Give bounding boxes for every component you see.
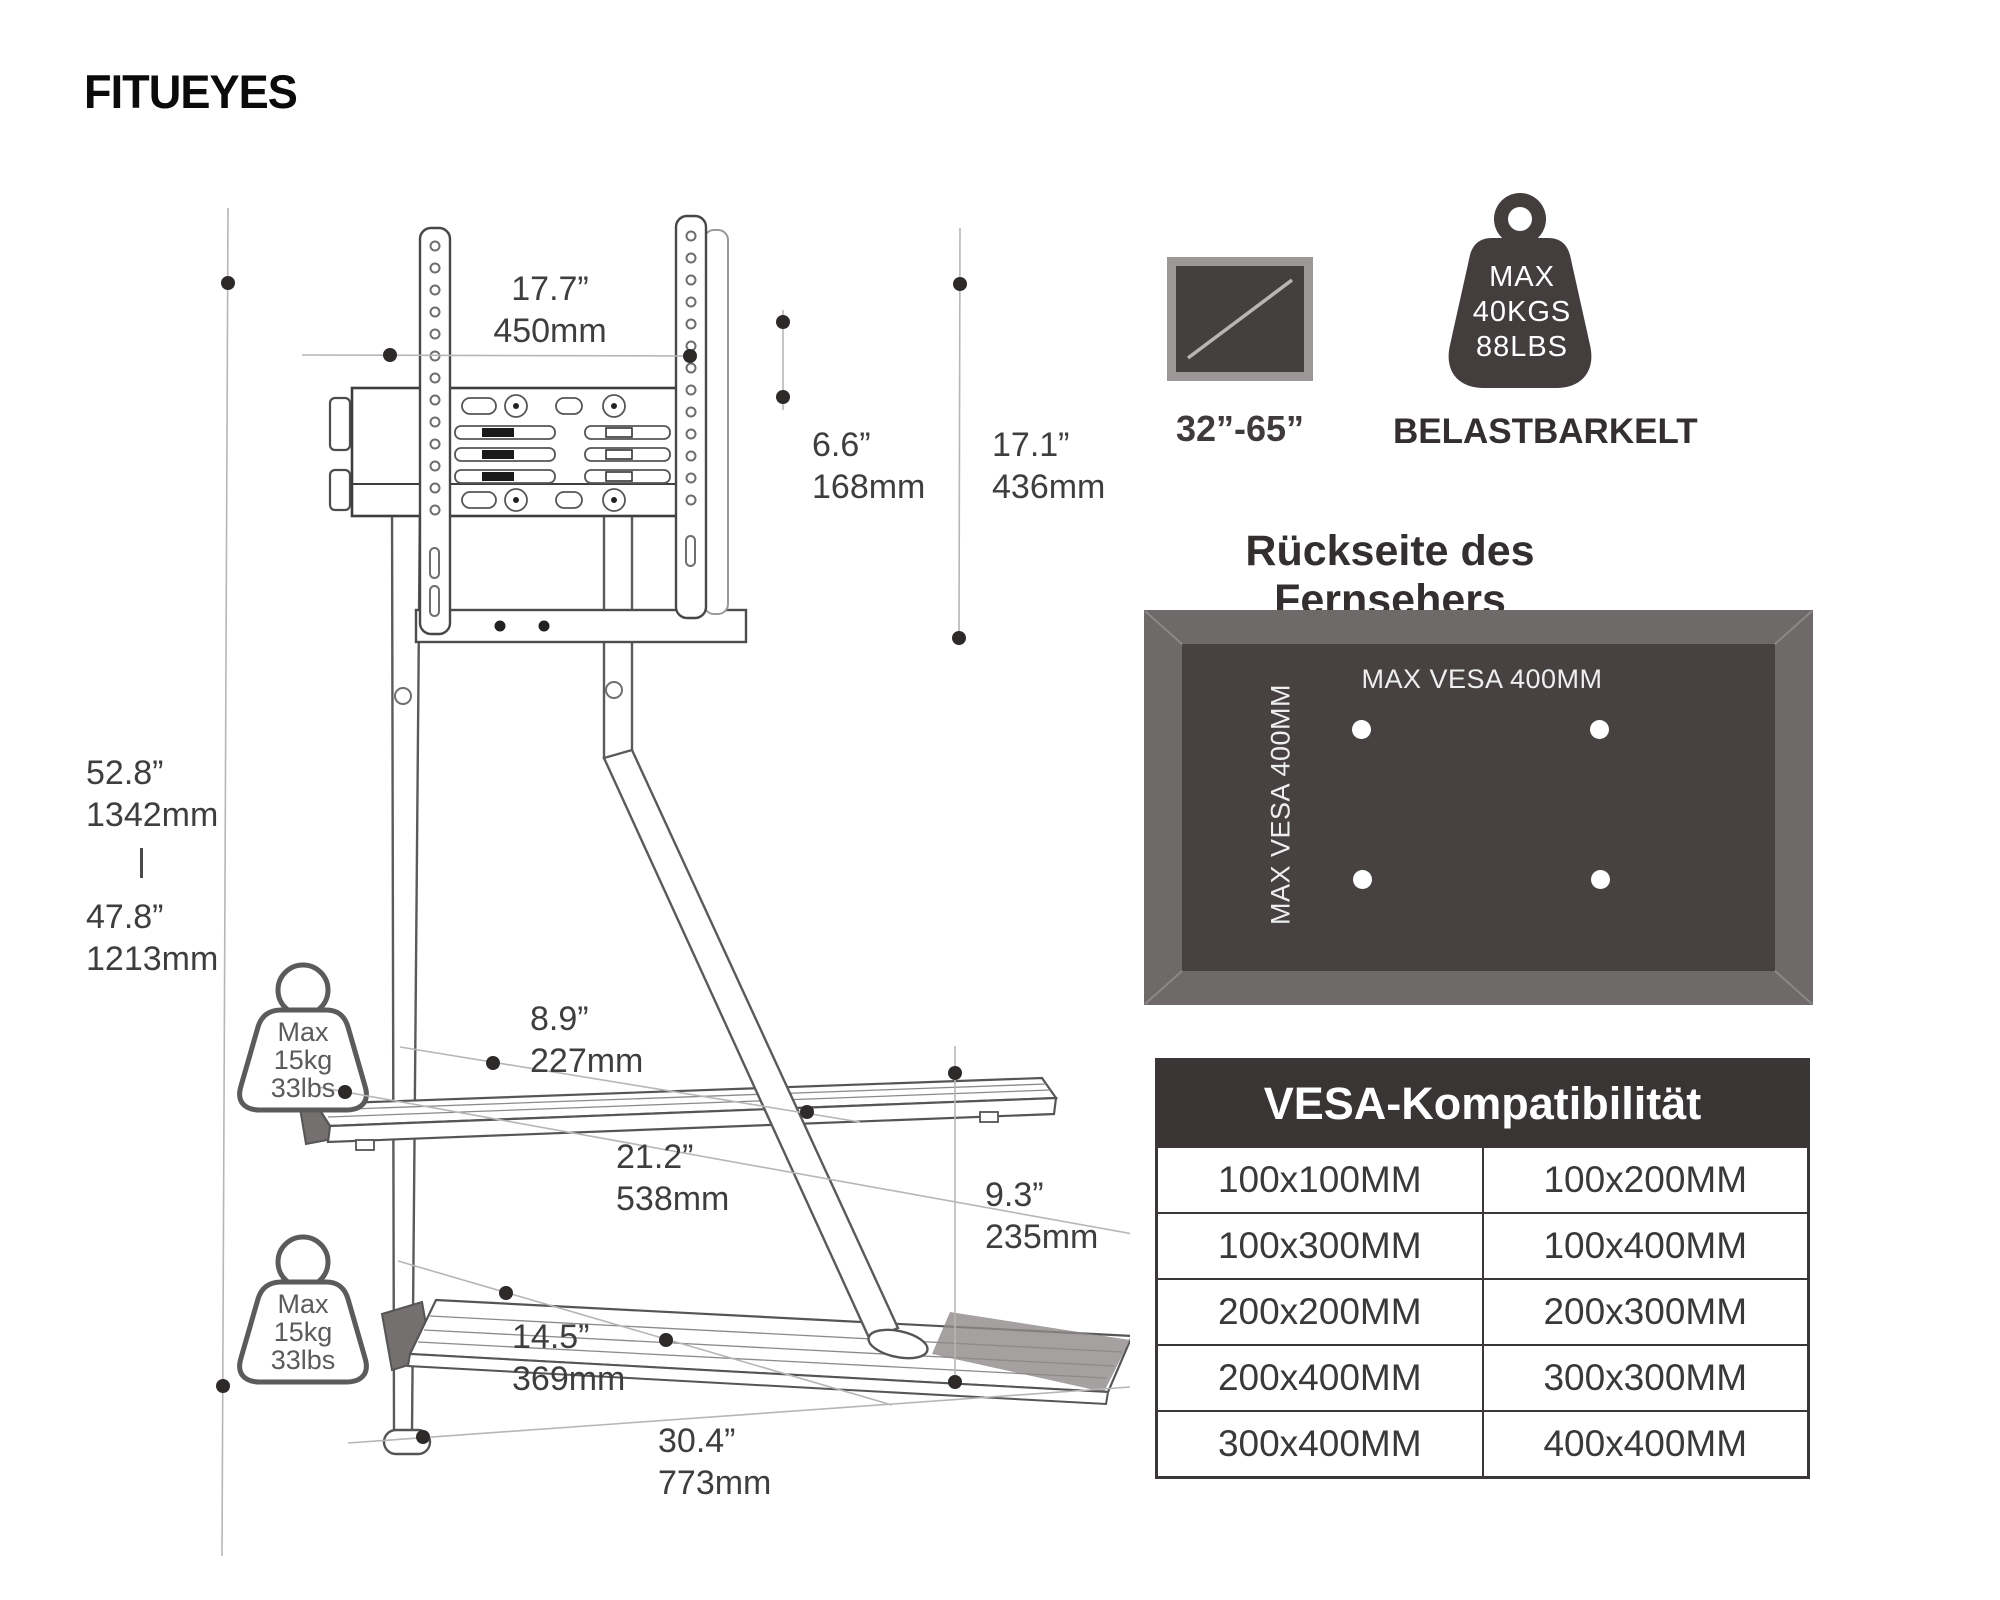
- shelf-load-badge-2: Max 15kg 33lbs: [243, 1290, 363, 1374]
- vesa-value: 300x400MM: [1158, 1412, 1484, 1476]
- rear-leg: [604, 750, 898, 1340]
- table-row: 200x200MM 200x300MM: [1158, 1278, 1807, 1344]
- table-row: 300x400MM 400x400MM: [1158, 1410, 1807, 1476]
- vesa-compatibility-table: VESA-Kompatibilität 100x100MM 100x200MM …: [1155, 1058, 1810, 1479]
- dim-bracket-depth: 6.6” 168mm: [812, 424, 925, 508]
- max-load-line2: 40KGS: [1442, 297, 1602, 327]
- dim-shelf-depth: 8.9” 227mm: [530, 998, 643, 1082]
- max-load-line3: 88LBS: [1442, 332, 1602, 362]
- mount-plate: [330, 388, 704, 516]
- vesa-value: 100x200MM: [1484, 1148, 1808, 1212]
- vesa-hole: [1590, 720, 1609, 739]
- vesa-table-title: VESA-Kompatibilität: [1158, 1061, 1807, 1146]
- bottom-shelf: [382, 1300, 1130, 1404]
- dim-base-width: 30.4” 773mm: [658, 1420, 771, 1504]
- dim-height-max: 52.8” 1342mm: [86, 752, 218, 836]
- table-row: 100x100MM 100x200MM: [1158, 1146, 1807, 1212]
- tv-size-range-label: 32”-65”: [1150, 408, 1330, 450]
- vesa-value: 200x400MM: [1158, 1346, 1484, 1410]
- vesa-max-horizontal-label: MAX VESA 400MM: [1312, 664, 1652, 695]
- vesa-value: 300x300MM: [1484, 1346, 1808, 1410]
- dim-bracket-height: 17.1” 436mm: [992, 424, 1105, 508]
- vesa-max-vertical-label: MAX VESA 400MM: [1266, 655, 1297, 955]
- vesa-hole: [1353, 870, 1372, 889]
- tv-back-panel: MAX VESA 400MM MAX VESA 400MM: [1144, 610, 1813, 1005]
- max-load-line1: MAX: [1442, 262, 1602, 292]
- tv-screen-size-icon: [1167, 257, 1313, 381]
- vesa-value: 400x400MM: [1484, 1412, 1808, 1476]
- vesa-hole: [1352, 720, 1371, 739]
- vesa-value: 200x200MM: [1158, 1280, 1484, 1344]
- table-row: 200x400MM 300x300MM: [1158, 1344, 1807, 1410]
- vesa-hole: [1591, 870, 1610, 889]
- vesa-value: 100x400MM: [1484, 1214, 1808, 1278]
- product-spec-sheet: FITUEYES: [0, 0, 2000, 1600]
- dim-base-clearance: 9.3” 235mm: [985, 1174, 1098, 1258]
- dim-base-depth: 14.5” 369mm: [512, 1316, 625, 1400]
- dim-bracket-width: 17.7” 450mm: [440, 268, 660, 352]
- load-capacity-caption: BELASTBARKELT: [1393, 412, 1653, 452]
- shelf-load-badge-1: Max 15kg 33lbs: [243, 1018, 363, 1102]
- height-range-tick: [140, 848, 143, 878]
- dim-shelf-width: 21.2” 538mm: [616, 1136, 729, 1220]
- vesa-value: 100x300MM: [1158, 1214, 1484, 1278]
- dim-height-min: 47.8” 1213mm: [86, 896, 218, 980]
- vesa-value: 200x300MM: [1484, 1280, 1808, 1344]
- table-row: 100x300MM 100x400MM: [1158, 1212, 1807, 1278]
- vesa-value: 100x100MM: [1158, 1148, 1484, 1212]
